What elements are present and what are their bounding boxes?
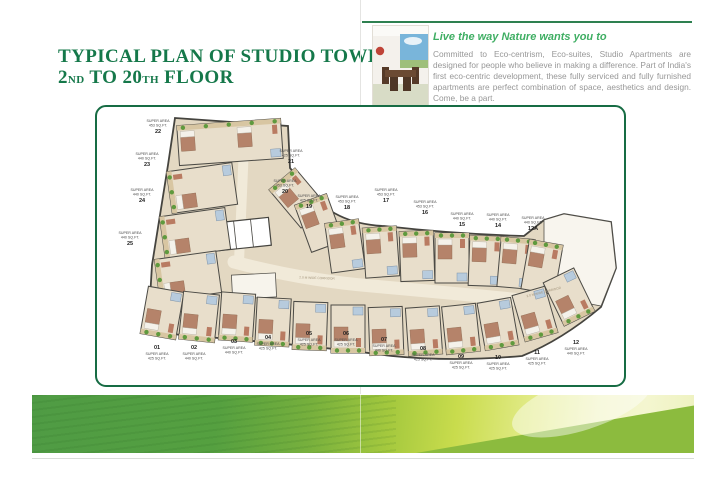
leaf-veins xyxy=(32,395,396,453)
header-rule xyxy=(362,21,692,23)
bathroom xyxy=(464,306,475,315)
unit-number: 05 xyxy=(306,331,312,337)
studio-unit xyxy=(255,297,291,347)
band-fold-seam xyxy=(360,395,361,453)
studio-unit xyxy=(177,118,284,165)
unit-area-label: SUPER AREA xyxy=(487,213,511,217)
unit-area-label: SUPER AREA xyxy=(257,342,281,346)
unit-area-value: 440 SQ.FT. xyxy=(225,351,243,355)
unit-area-label: SUPER AREA xyxy=(147,119,171,123)
bed xyxy=(366,239,381,254)
unit-area-label: SUPER AREA xyxy=(136,152,160,156)
bathroom xyxy=(279,300,289,309)
unit-number: 23 xyxy=(144,162,150,168)
bathroom xyxy=(457,273,467,281)
unit-area-value: 425 SQ.FT. xyxy=(489,367,507,371)
bed-pillow xyxy=(182,327,197,334)
wardrobe xyxy=(206,327,212,336)
studio-unit xyxy=(218,292,255,342)
unit-number: 20 xyxy=(282,189,288,195)
unit-number: 02 xyxy=(191,345,197,351)
unit-number: 01 xyxy=(154,345,160,351)
brochure-page: TYPICAL PLAN OF STUDIO TOWER 2ND TO 20TH… xyxy=(0,0,720,480)
unit-number: 03 xyxy=(231,339,237,345)
photo-chair xyxy=(390,77,398,91)
plant-icon xyxy=(439,233,443,237)
bed xyxy=(447,327,462,342)
studio-unit xyxy=(435,233,469,283)
unit-area-value: 440 SQ.FT. xyxy=(524,221,542,225)
studio-unit xyxy=(179,291,220,343)
unit-area-label: SUPER AREA xyxy=(298,194,322,198)
unit-number: 11 xyxy=(534,350,540,356)
unit-area-value: 440 SQ.FT. xyxy=(138,157,156,161)
unit-area-label: SUPER AREA xyxy=(336,195,360,199)
unit-area-label: SUPER AREA xyxy=(565,347,589,351)
unit-number: 24 xyxy=(139,198,146,204)
bed xyxy=(183,313,198,328)
unit-number: 12A xyxy=(528,226,538,232)
unit-number: 07 xyxy=(381,337,387,343)
bed-pillow xyxy=(222,328,236,335)
bathroom xyxy=(206,253,215,264)
unit-area-label: SUPER AREA xyxy=(375,188,399,192)
title-floor-end: FLOOR xyxy=(159,67,234,88)
studio-unit xyxy=(442,303,481,354)
unit-area-value: 453 SQ.FT. xyxy=(338,200,356,204)
title-line-2: 2ND TO 20TH FLOOR xyxy=(58,67,395,91)
band-shadow-line xyxy=(32,458,694,459)
title-ordinal-nd: ND xyxy=(68,74,85,86)
plant-icon xyxy=(346,348,350,352)
bed xyxy=(472,248,486,262)
unit-area-value: 453 SQ.FT. xyxy=(377,193,395,197)
bed xyxy=(403,243,417,257)
intro-heading: Live the way Nature wants you to xyxy=(433,31,691,43)
unit-area-label: SUPER AREA xyxy=(119,231,143,235)
unit-area-value: 440 SQ.FT. xyxy=(133,193,151,197)
photo-red-decor xyxy=(376,47,384,55)
floor-plan-svg: SUPER AREA453 SQ.FT.22SUPER AREA440 SQ.F… xyxy=(92,100,632,390)
title-floor-start: 2 xyxy=(58,67,68,88)
bathroom xyxy=(390,308,400,316)
bed-pillow xyxy=(180,130,194,137)
unit-area-label: SUPER AREA xyxy=(526,357,550,361)
unit-number: 25 xyxy=(127,241,133,247)
photo-dining-table xyxy=(385,70,416,77)
unit-area-label: SUPER AREA xyxy=(223,346,247,350)
unit-area-value: 440 SQ.FT. xyxy=(121,236,139,240)
unit-area-value: 453 SQ.FT. xyxy=(149,124,167,128)
unit-number: 15 xyxy=(459,222,465,228)
unit-area-label: SUPER AREA xyxy=(450,361,474,365)
wardrobe xyxy=(244,327,250,336)
wardrobe xyxy=(433,339,439,348)
title-line-1: TYPICAL PLAN OF STUDIO TOWER xyxy=(58,46,395,67)
unit-area-value: 425 SQ.FT. xyxy=(337,343,355,347)
bathroom xyxy=(170,292,181,302)
unit-area-label: SUPER AREA xyxy=(280,149,304,153)
unit-area-label: SUPER AREA xyxy=(451,212,475,216)
bed xyxy=(182,193,198,209)
unit-area-value: 453 SQ.FT. xyxy=(416,205,434,209)
bed-pillow xyxy=(438,239,452,245)
unit-area-label: SUPER AREA xyxy=(412,353,436,357)
title-floor-mid: TO 20 xyxy=(85,67,143,88)
unit-area-value: 425 SQ.FT. xyxy=(282,154,300,158)
bed xyxy=(175,238,191,254)
plant-icon xyxy=(461,233,465,237)
bed xyxy=(258,319,273,334)
bed-pillow xyxy=(237,126,251,133)
page-title: TYPICAL PLAN OF STUDIO TOWER 2ND TO 20TH… xyxy=(58,46,395,91)
studio-unit xyxy=(166,163,237,214)
bed-pillow xyxy=(366,233,380,240)
unit-number: 18 xyxy=(344,205,350,211)
wardrobe xyxy=(280,331,285,340)
bathroom xyxy=(352,259,363,268)
unit-area-label: SUPER AREA xyxy=(146,352,170,356)
bathroom xyxy=(206,296,217,305)
bed xyxy=(484,322,500,338)
bed-pillow xyxy=(448,341,463,348)
interior-photo xyxy=(373,26,428,107)
bed-pillow xyxy=(402,237,416,243)
bathroom xyxy=(499,300,510,310)
bathroom xyxy=(353,307,363,315)
unit-area-label: SUPER AREA xyxy=(335,338,359,342)
unit-number: 22 xyxy=(155,129,161,135)
unit-area-value: 425 SQ.FT. xyxy=(300,199,318,203)
intro-body: Committed to Eco-centrism, Eco-suites, S… xyxy=(433,49,691,104)
unit-area-value: 425 SQ.FT. xyxy=(414,358,432,362)
unit-area-value: 440 SQ.FT. xyxy=(375,349,393,353)
unit-area-label: SUPER AREA xyxy=(487,362,511,366)
bathroom xyxy=(387,266,398,275)
wardrobe xyxy=(470,337,476,346)
bed xyxy=(329,233,345,249)
photo-cloud xyxy=(404,37,422,45)
unit-area-value: 425 SQ.FT. xyxy=(528,362,546,366)
unit-number: 12 xyxy=(573,340,579,346)
unit-area-value: 453 SQ.FT. xyxy=(276,184,294,188)
studio-unit xyxy=(159,208,230,259)
unit-area-value: 440 SQ.FT. xyxy=(489,218,507,222)
plant-icon xyxy=(357,348,361,352)
bed xyxy=(237,132,252,147)
unit-area-label: SUPER AREA xyxy=(414,200,438,204)
bed xyxy=(145,308,161,324)
bathroom xyxy=(427,308,438,317)
wardrobe xyxy=(424,237,429,246)
photo-mural-field xyxy=(400,60,428,68)
plant-icon xyxy=(450,233,454,237)
wardrobe xyxy=(272,125,278,134)
unit-number: 08 xyxy=(420,346,426,352)
unit-area-label: SUPER AREA xyxy=(373,344,397,348)
unit-number: 06 xyxy=(343,331,349,337)
wardrobe xyxy=(460,239,465,248)
bathroom xyxy=(215,210,224,221)
bed xyxy=(181,136,196,151)
unit-area-label: SUPER AREA xyxy=(183,352,207,356)
leaf-photo-band xyxy=(32,395,694,453)
studio-unit xyxy=(399,230,435,281)
bathroom xyxy=(315,304,325,312)
unit-area-label: SUPER AREA xyxy=(131,188,155,192)
unit-area-label: SUPER AREA xyxy=(298,338,322,342)
unit-area-value: 440 SQ.FT. xyxy=(567,352,585,356)
bed xyxy=(438,245,452,259)
plant-icon xyxy=(335,348,339,352)
intro-block: Live the way Nature wants you to Committ… xyxy=(433,31,691,104)
unit-area-value: 425 SQ.FT. xyxy=(300,343,318,347)
bed-pillow xyxy=(472,242,486,248)
studio-unit xyxy=(325,219,366,273)
unit-area-label: SUPER AREA xyxy=(274,179,298,183)
unit-number: 04 xyxy=(265,335,272,341)
unit-number: 17 xyxy=(383,198,389,204)
unit-number: 14 xyxy=(495,223,502,229)
photo-chair xyxy=(403,77,411,91)
studio-unit xyxy=(140,286,184,340)
bed-pillow xyxy=(503,243,517,250)
bed xyxy=(528,252,544,268)
bathroom xyxy=(222,165,231,176)
bathroom xyxy=(243,295,254,304)
unit-area-value: 425 SQ.FT. xyxy=(452,366,470,370)
bed xyxy=(410,329,425,344)
unit-area-value: 425 SQ.FT. xyxy=(148,357,166,361)
unit-number: 09 xyxy=(458,354,464,360)
unit-area-label: SUPER AREA xyxy=(522,216,546,220)
bed xyxy=(222,314,237,329)
unit-area-value: 440 SQ.FT. xyxy=(185,357,203,361)
bathroom xyxy=(423,270,433,278)
unit-number: 21 xyxy=(288,159,294,165)
title-ordinal-th: TH xyxy=(142,74,159,86)
studio-unit xyxy=(362,226,399,278)
bed xyxy=(502,249,517,264)
unit-number: 19 xyxy=(306,204,312,210)
unit-number: 16 xyxy=(422,210,428,216)
unit-number: 10 xyxy=(495,355,501,361)
wardrobe xyxy=(388,232,394,241)
wardrobe xyxy=(494,242,499,251)
unit-area-value: 425 SQ.FT. xyxy=(259,347,277,351)
unit-area-value: 440 SQ.FT. xyxy=(453,217,471,221)
